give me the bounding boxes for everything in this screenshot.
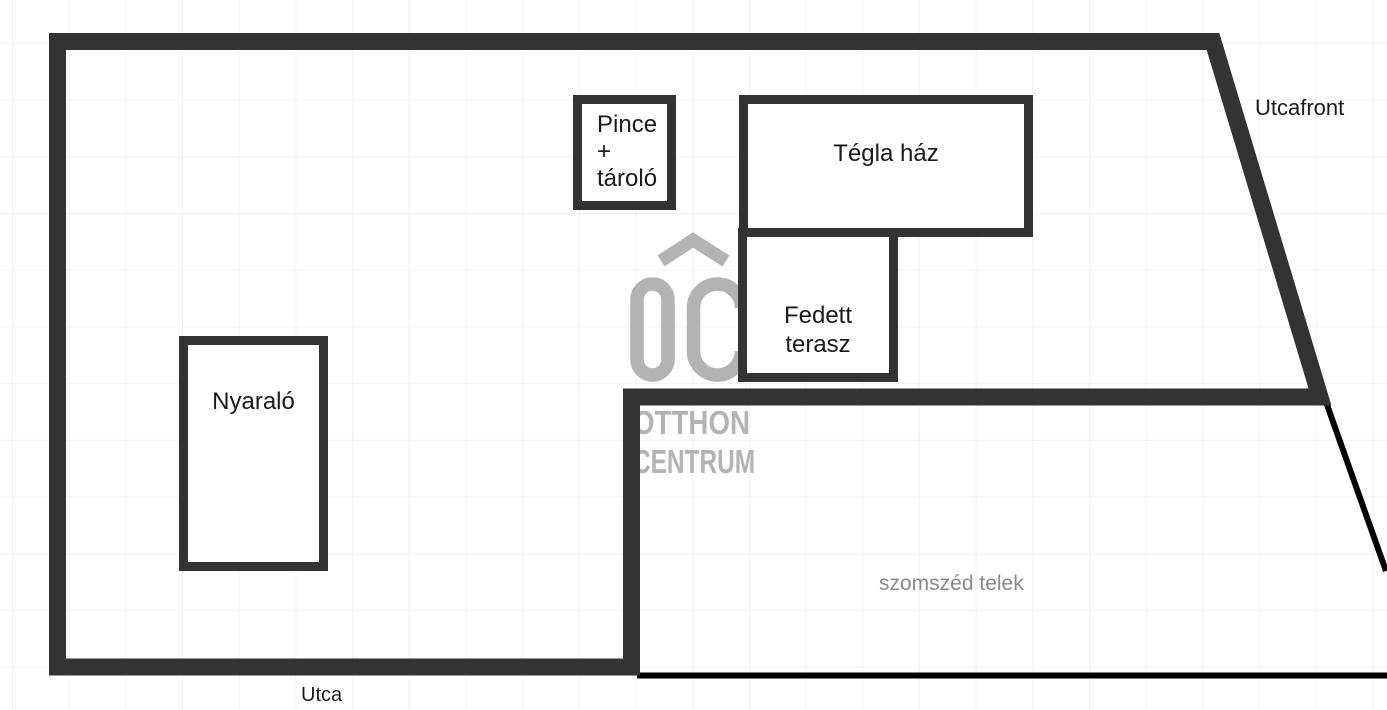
- label-utcafront: Utcafront: [1255, 96, 1344, 120]
- building-nyaralo: Nyaraló: [179, 336, 328, 571]
- building-pince-tarolo: Pince + tároló: [573, 95, 676, 210]
- building-pince-line3: tároló: [597, 165, 667, 192]
- building-pince-line2: +: [597, 138, 667, 165]
- building-fedett-line1: Fedett: [747, 301, 889, 330]
- label-szomszed-telek: szomszéd telek: [879, 572, 1024, 595]
- roof-chevron-icon: [661, 240, 726, 261]
- neighbor-plot-diagonal-line: [1326, 402, 1386, 571]
- logo-letter-c: [694, 284, 742, 375]
- building-fedett-line2: terasz: [747, 330, 889, 359]
- site-plan: OTTHON CENTRUM Pince + tároló Tégla ház …: [0, 0, 1387, 710]
- logo-letter-o: [637, 284, 668, 375]
- building-tegla-label: Tégla ház: [748, 140, 1024, 167]
- label-utca: Utca: [301, 684, 342, 706]
- building-nyaralo-label: Nyaraló: [188, 388, 319, 415]
- building-fedett-terasz: Fedett terasz: [738, 228, 898, 382]
- building-tegla-haz: Tégla ház: [739, 95, 1033, 237]
- otthon-centrum-logo: [637, 240, 742, 375]
- building-pince-line1: Pince: [597, 111, 667, 138]
